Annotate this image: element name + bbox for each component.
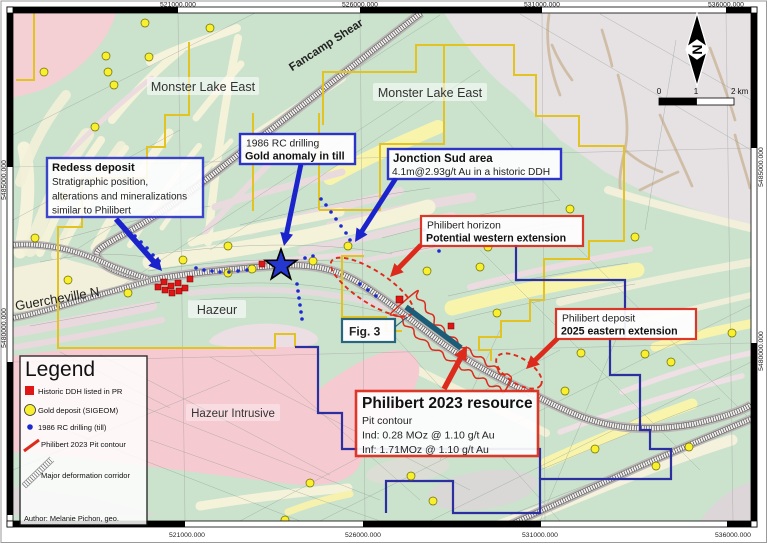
svg-text:Gold anomaly in till: Gold anomaly in till xyxy=(245,151,345,163)
svg-text:Potential western extension: Potential western extension xyxy=(426,233,566,245)
svg-text:521000.000: 521000.000 xyxy=(160,2,196,9)
svg-text:Jonction Sud area: Jonction Sud area xyxy=(393,153,493,165)
svg-text:Hazeur: Hazeur xyxy=(197,303,237,317)
svg-text:Gold deposit (SIGEOM): Gold deposit (SIGEOM) xyxy=(38,406,119,415)
svg-text:4.1m@2.93g/t Au in a historic: 4.1m@2.93g/t Au in a historic DDH xyxy=(392,167,550,178)
svg-text:1986 RC drilling: 1986 RC drilling xyxy=(246,139,320,150)
svg-text:Philibert 2023 Pit contour: Philibert 2023 Pit contour xyxy=(41,440,126,449)
svg-text:Fig. 3: Fig. 3 xyxy=(349,325,381,339)
svg-text:0: 0 xyxy=(657,87,662,96)
svg-text:Inf: 1.71MOz @ 1.10 g/t Au: Inf: 1.71MOz @ 1.10 g/t Au xyxy=(362,444,489,456)
svg-text:536000.000: 536000.000 xyxy=(715,532,751,539)
svg-text:Philibert deposit: Philibert deposit xyxy=(562,314,635,325)
svg-text:2 km: 2 km xyxy=(731,87,749,96)
svg-text:Monster Lake East: Monster Lake East xyxy=(151,80,256,94)
svg-text:Hazeur Intrusive: Hazeur Intrusive xyxy=(191,408,275,420)
svg-text:Historic DDH listed in PR: Historic DDH listed in PR xyxy=(38,387,123,396)
svg-text:Monster Lake East: Monster Lake East xyxy=(378,86,483,100)
svg-text:N: N xyxy=(689,44,705,54)
svg-text:Ind: 0.28 MOz @ 1.10 g/t Au: Ind: 0.28 MOz @ 1.10 g/t Au xyxy=(362,430,495,442)
svg-text:alterations and mineralization: alterations and mineralizations xyxy=(52,192,187,203)
svg-text:1986 RC drilling (till): 1986 RC drilling (till) xyxy=(38,423,107,432)
svg-text:Stratigraphic position,: Stratigraphic position, xyxy=(52,177,148,188)
svg-text:5480000.000: 5480000.000 xyxy=(1,308,8,348)
svg-text:Major deformation corridor: Major deformation corridor xyxy=(41,471,131,480)
svg-text:Legend: Legend xyxy=(25,358,95,381)
svg-text:similar to Philibert: similar to Philibert xyxy=(52,206,131,217)
svg-text:5485000.000: 5485000.000 xyxy=(1,160,8,200)
svg-text:526000.000: 526000.000 xyxy=(342,2,378,9)
svg-text:2025 eastern extension: 2025 eastern extension xyxy=(561,326,678,338)
svg-text:5480000.000: 5480000.000 xyxy=(758,331,765,371)
svg-text:526000.000: 526000.000 xyxy=(345,532,381,539)
svg-text:521000.000: 521000.000 xyxy=(169,532,205,539)
svg-text:Philibert 2023 resource: Philibert 2023 resource xyxy=(362,395,533,412)
svg-text:Author: Melanie Pichon, geo.: Author: Melanie Pichon, geo. xyxy=(24,514,119,523)
svg-text:531000.000: 531000.000 xyxy=(522,532,558,539)
svg-text:Redess deposit: Redess deposit xyxy=(52,162,135,174)
svg-text:1: 1 xyxy=(694,87,699,96)
svg-text:Philibert horizon: Philibert horizon xyxy=(427,221,501,232)
svg-text:531000.000: 531000.000 xyxy=(524,2,560,9)
svg-text:536000.000: 536000.000 xyxy=(708,2,744,9)
svg-text:Pit contour: Pit contour xyxy=(362,415,413,427)
svg-text:5485000.000: 5485000.000 xyxy=(758,147,765,187)
